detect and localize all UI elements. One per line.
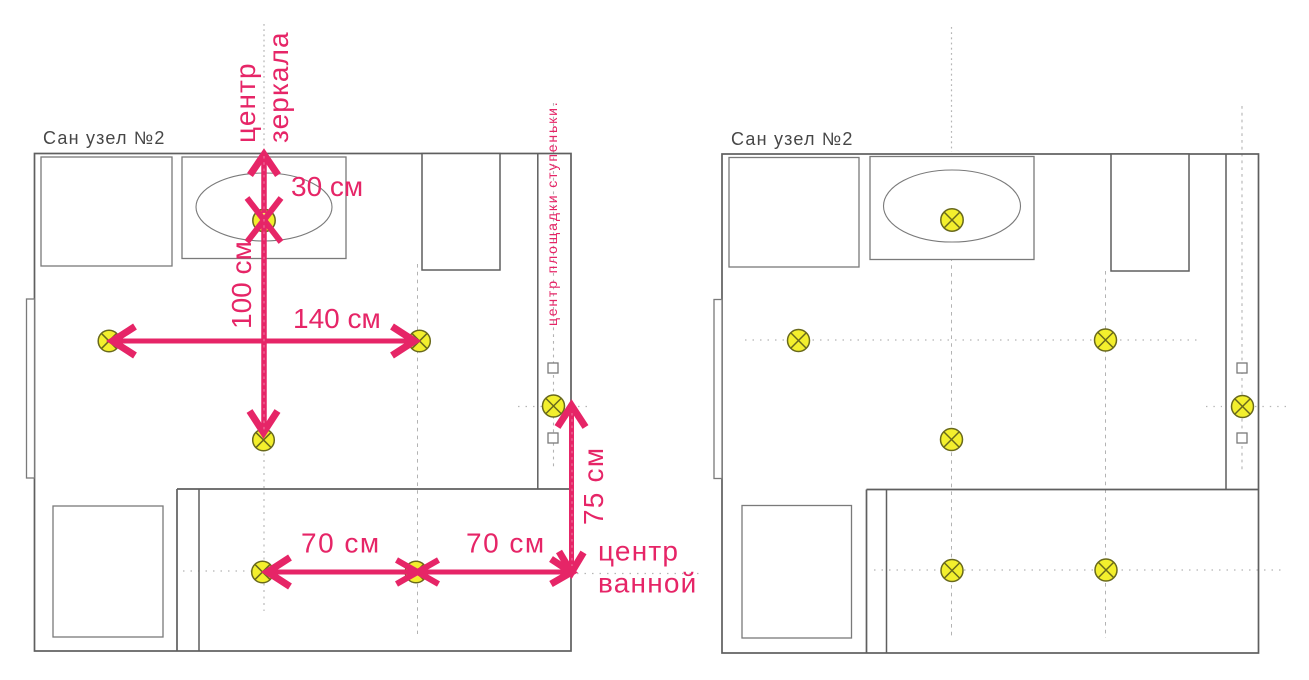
svg-text:75 см: 75 см — [578, 447, 609, 525]
svg-text:30 см: 30 см — [291, 171, 363, 202]
svg-text:ванной: ванной — [598, 568, 697, 599]
svg-text:Сан узел №2: Сан узел №2 — [731, 129, 854, 149]
svg-text:100 см: 100 см — [226, 241, 257, 329]
svg-text:Сан узел №2: Сан узел №2 — [43, 128, 166, 148]
svg-text:зеркала: зеркала — [263, 31, 294, 143]
svg-text:140 см: 140 см — [293, 303, 381, 334]
svg-text:центр: центр — [598, 536, 679, 567]
svg-text:центр площадки ступеньки.: центр площадки ступеньки. — [544, 100, 560, 326]
svg-text:70 см: 70 см — [301, 528, 381, 559]
svg-text:70 см: 70 см — [466, 528, 546, 559]
svg-text:центр: центр — [230, 62, 261, 143]
